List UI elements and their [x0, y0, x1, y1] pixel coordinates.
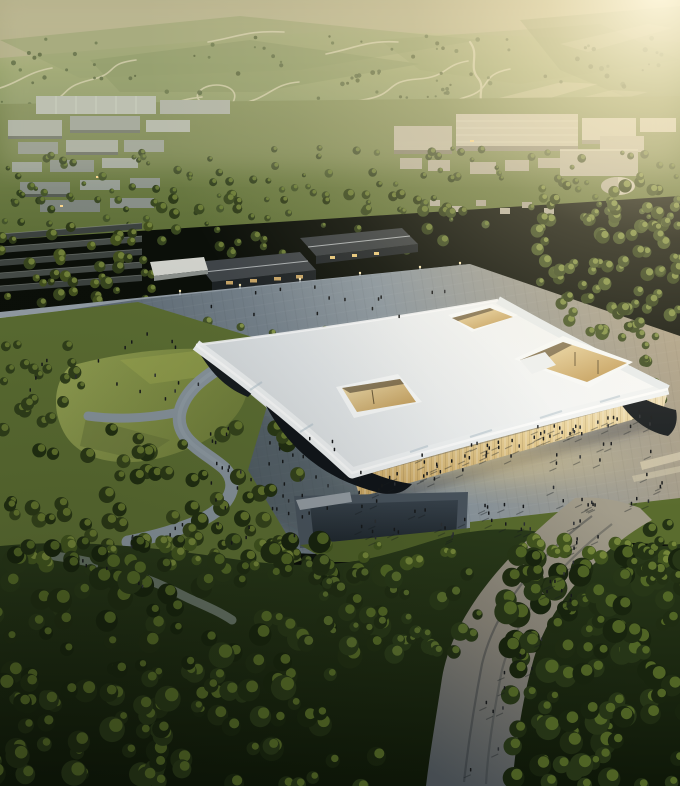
atmosphere — [0, 0, 680, 786]
vignette — [0, 0, 680, 786]
architectural-rendering — [0, 0, 680, 786]
aerial-render-canvas — [0, 0, 680, 786]
